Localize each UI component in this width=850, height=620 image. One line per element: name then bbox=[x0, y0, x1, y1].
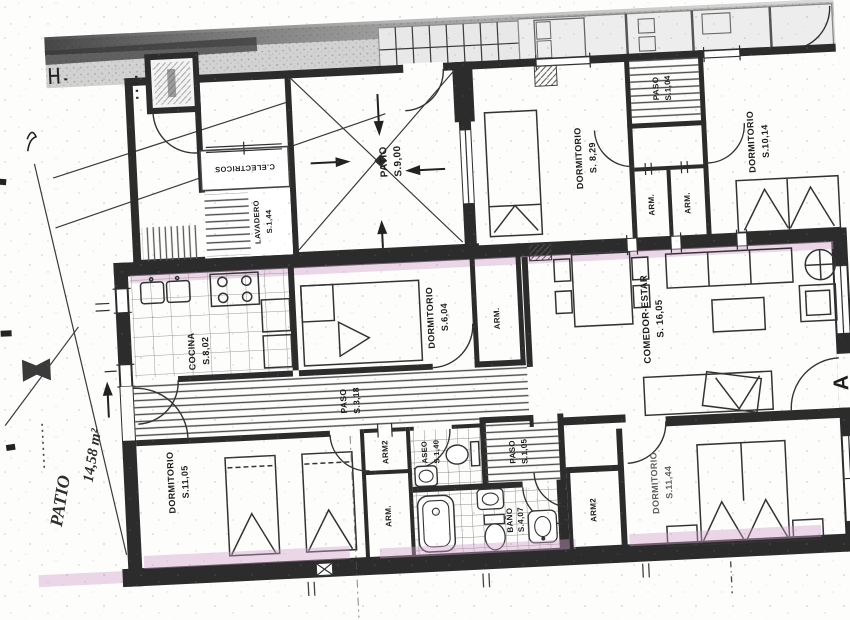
scanned-floorplan-page: PATIO 14,58 m² bbox=[0, 0, 850, 620]
scan-noise-overlay bbox=[0, 0, 850, 620]
floorplan-canvas: PATIO 14,58 m² bbox=[0, 0, 850, 620]
